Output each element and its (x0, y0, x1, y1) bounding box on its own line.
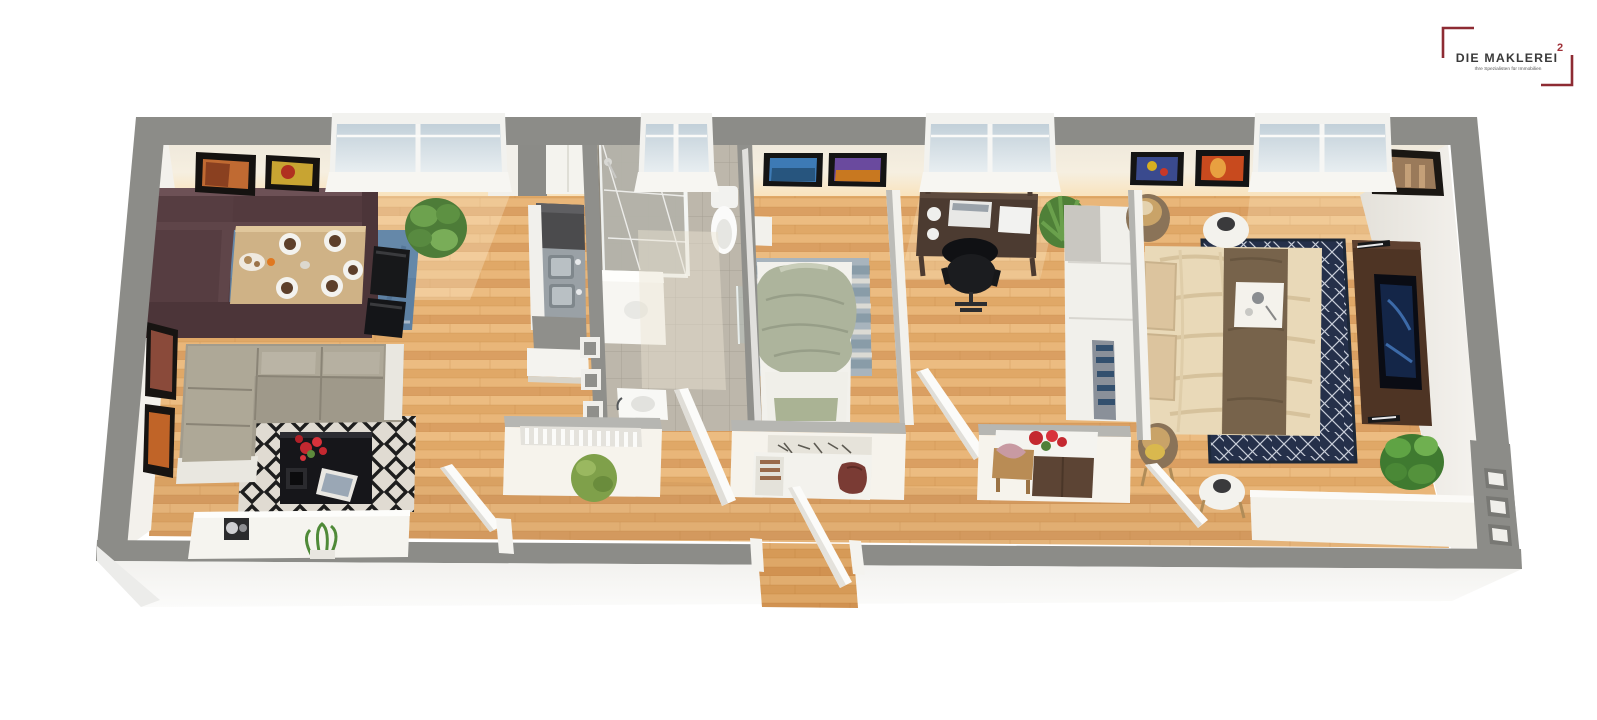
svg-text:Ihre Spezialisten für Immobili: Ihre Spezialisten für Immobilien (1475, 66, 1542, 72)
svg-text:DIE MAKLEREI: DIE MAKLEREI (1456, 51, 1559, 65)
svg-text:2: 2 (1557, 42, 1563, 54)
